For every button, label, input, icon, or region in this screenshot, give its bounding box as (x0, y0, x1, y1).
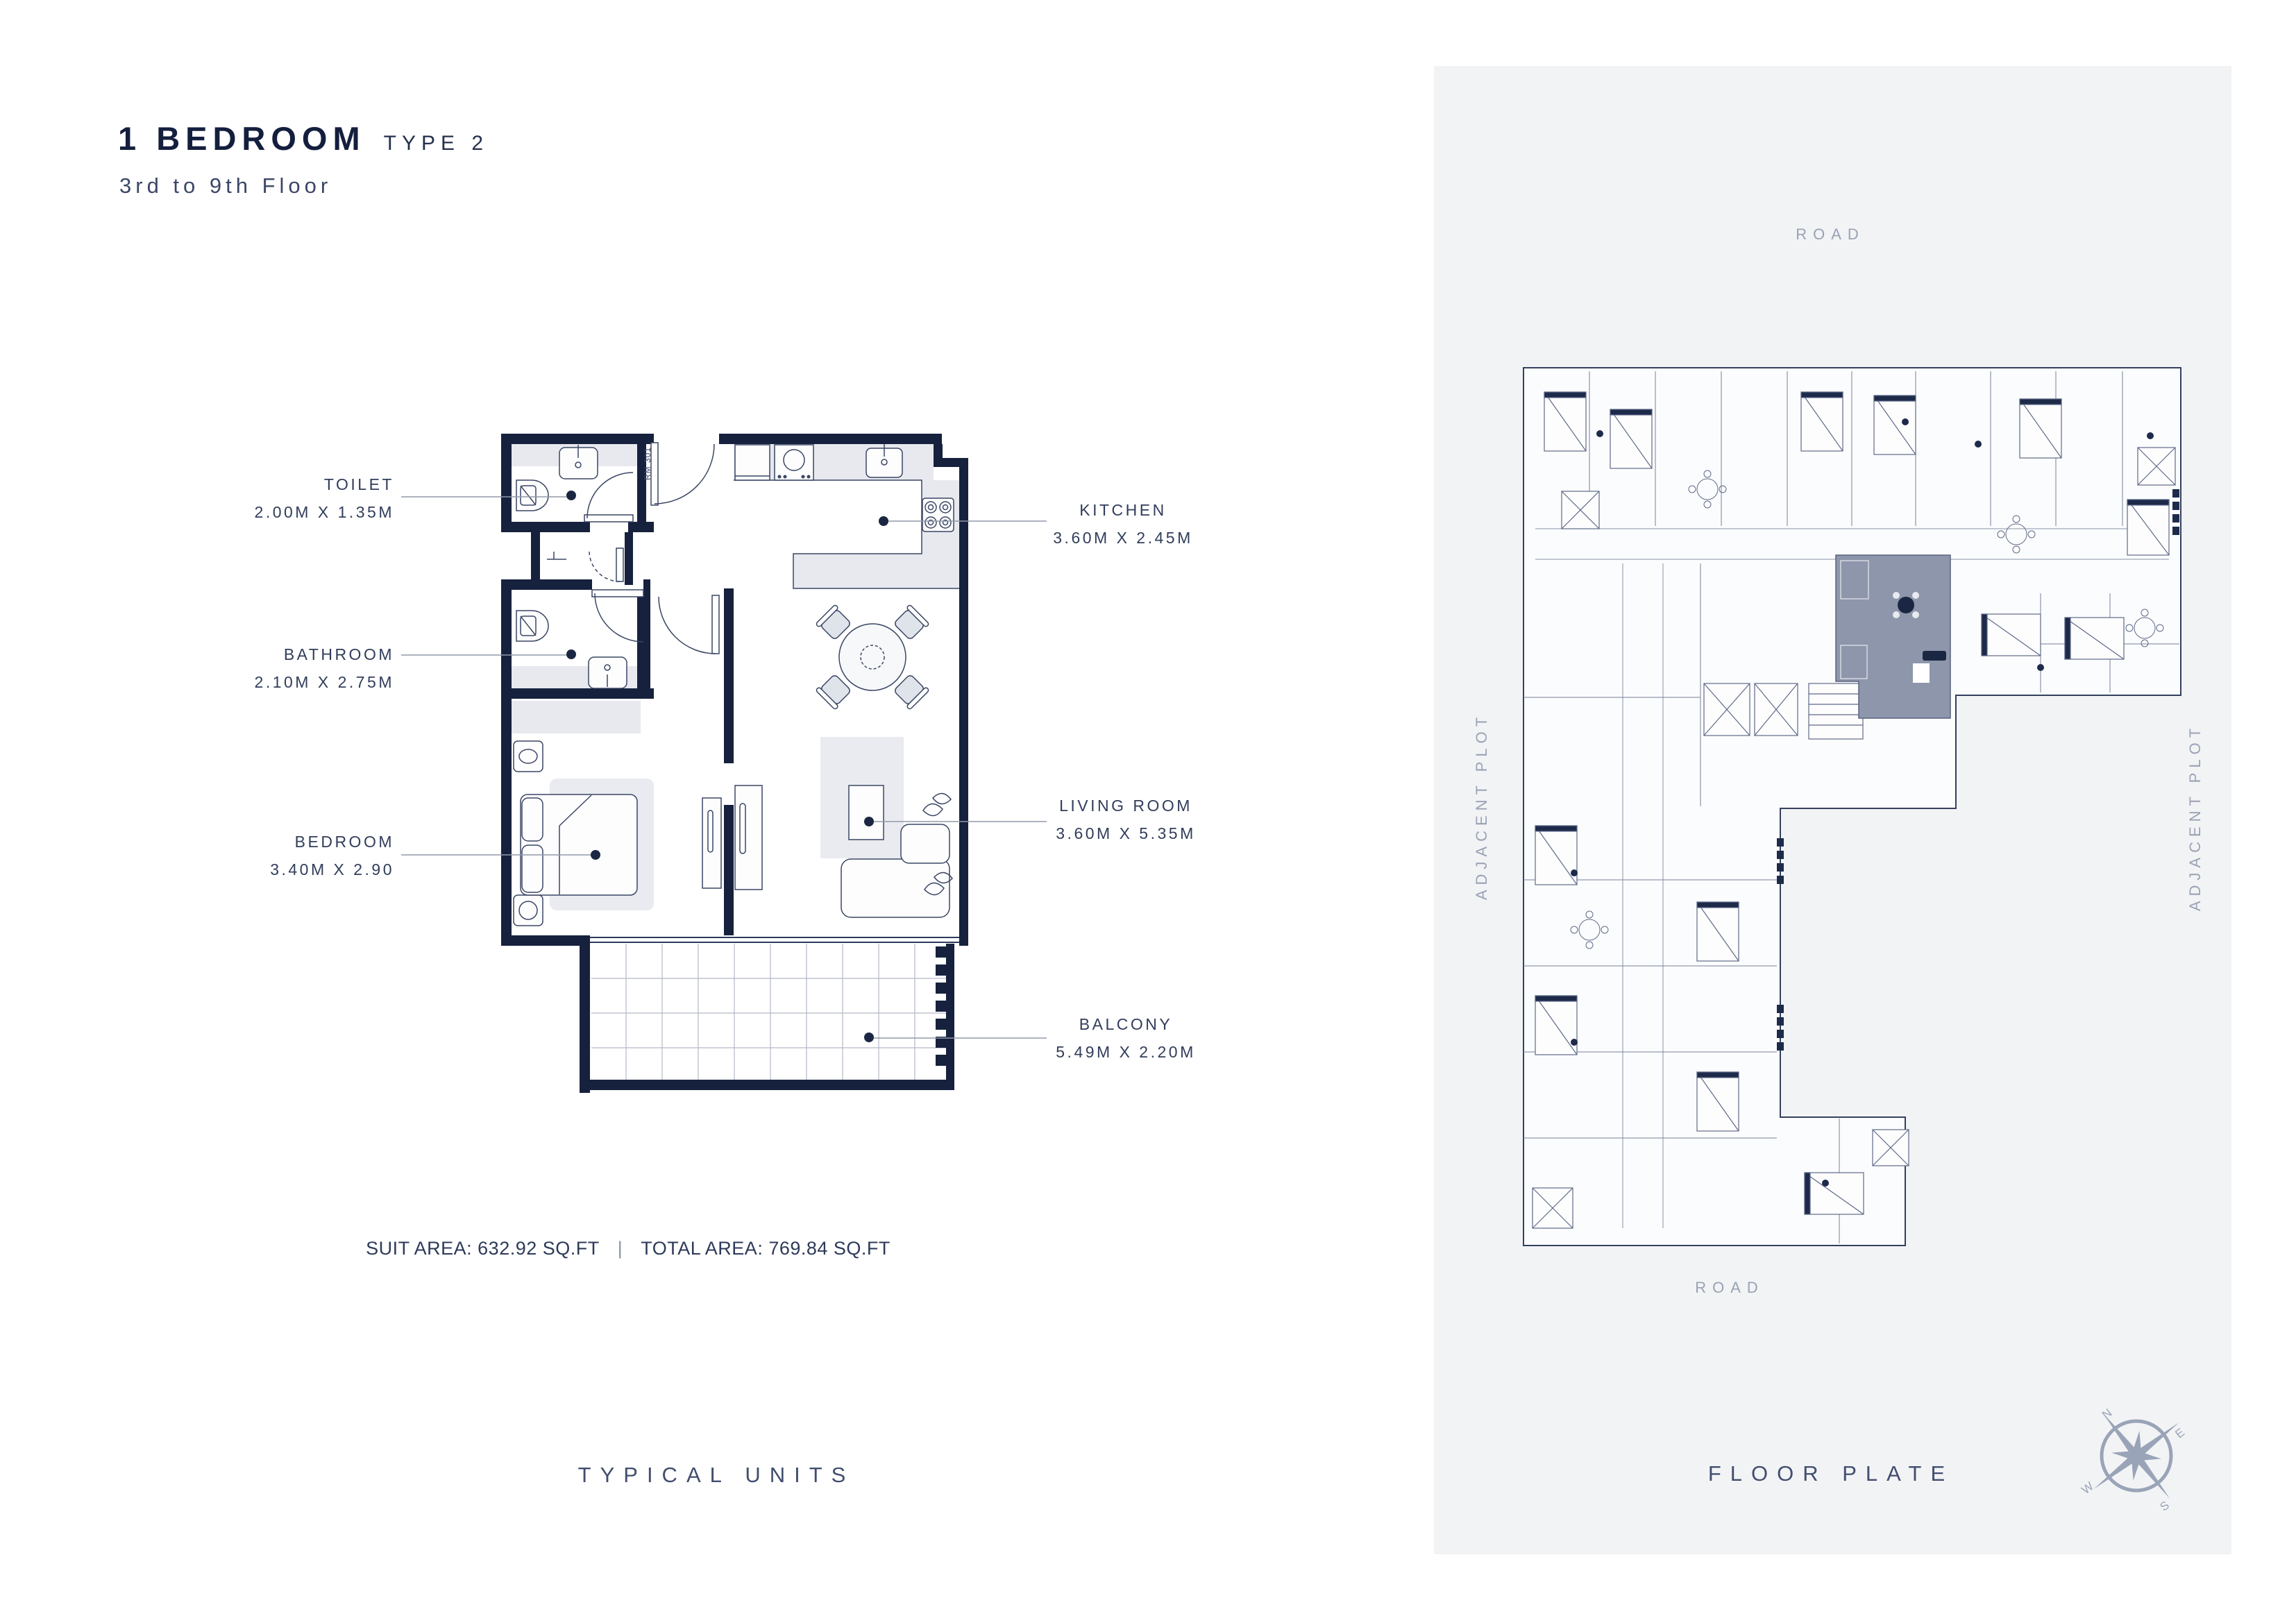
nightstand (514, 895, 543, 926)
room-dims: 2.10M X 2.75M (179, 673, 394, 692)
unit-plan (401, 434, 1047, 1093)
road-label-top: ROAD (1726, 226, 1934, 244)
total-area: TOTAL AREA: 769.84 SQ.FT (641, 1238, 890, 1259)
room-name: TOILET (179, 475, 394, 494)
label-toilet: TOILET 2.00M X 1.35M (179, 475, 394, 522)
room-name: BALCONY (1008, 1015, 1244, 1034)
room-name: LIVING ROOM (1008, 797, 1244, 815)
floorplan-sheet: 1 BEDROOM TYPE 2 3rd to 9th Floor TOILET… (0, 0, 2296, 1623)
sliding-door (702, 798, 721, 888)
unit-type: TYPE 2 (384, 132, 489, 155)
sliding-door (735, 785, 762, 890)
road-label-bottom: ROAD (1626, 1279, 1834, 1297)
coffee-table (849, 785, 884, 840)
room-dims: 2.00M X 1.35M (179, 503, 394, 522)
room-dims: 5.49M X 2.20M (1008, 1043, 1244, 1062)
bathroom-wc (516, 611, 548, 641)
label-living-room: LIVING ROOM 3.60M X 5.35M (1008, 797, 1244, 843)
adjacent-plot-right: ADJACENT PLOT (2186, 724, 2204, 911)
page-title-row: 1 BEDROOM TYPE 2 (118, 119, 489, 158)
room-dims: 3.60M X 5.35M (1008, 824, 1244, 843)
toilet-wc (516, 480, 548, 511)
sofa-chaise (901, 824, 949, 863)
sofa (841, 859, 949, 917)
page-title: 1 BEDROOM (118, 119, 366, 158)
nightstand (514, 741, 543, 772)
floor-plate-caption: FLOOR PLATE (1651, 1461, 2011, 1486)
room-name: BATHROOM (179, 645, 394, 664)
fridge (735, 445, 770, 480)
room-number: RM 301 (643, 447, 652, 480)
area-summary: SUIT AREA: 632.92 SQ.FT | TOTAL AREA: 76… (378, 1238, 878, 1259)
area-divider: | (618, 1238, 623, 1259)
room-dims: 3.40M X 2.90 (179, 860, 394, 879)
suit-area: SUIT AREA: 632.92 SQ.FT (366, 1238, 600, 1259)
label-bedroom: BEDROOM 3.40M X 2.90 (179, 833, 394, 879)
room-name: BEDROOM (179, 833, 394, 851)
dining-set (816, 604, 929, 710)
typical-units-caption: TYPICAL UNITS (536, 1463, 897, 1488)
plant (923, 804, 943, 815)
label-bathroom: BATHROOM 2.10M X 2.75M (179, 645, 394, 692)
room-dims: 3.60M X 2.45M (1005, 529, 1241, 547)
utility-faucet (547, 552, 566, 559)
adjacent-plot-left: ADJACENT PLOT (1473, 713, 1491, 900)
room-name: KITCHEN (1005, 501, 1241, 520)
floor-range: 3rd to 9th Floor (119, 173, 332, 198)
label-kitchen: KITCHEN 3.60M X 2.45M (1005, 501, 1241, 547)
label-balcony: BALCONY 5.49M X 2.20M (1008, 1015, 1244, 1062)
